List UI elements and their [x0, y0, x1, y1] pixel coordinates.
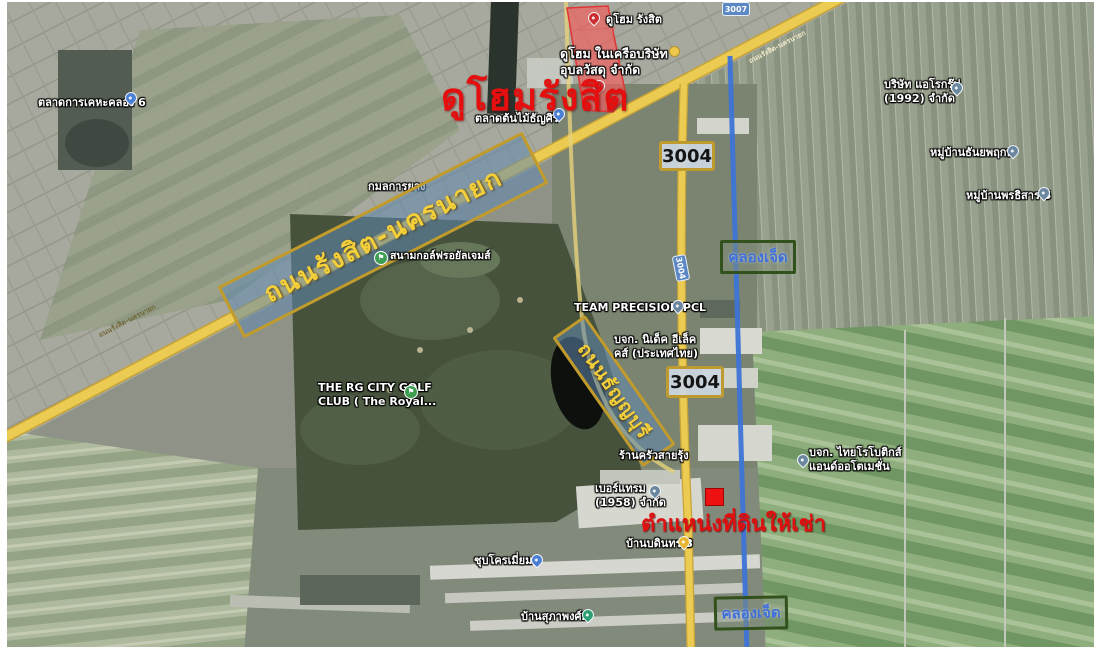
label-bertram-line1: เบอร์แทรม [595, 482, 646, 495]
label-rg-city-golf: THE RG CITY GOLF CLUB ( The Royal... [318, 381, 436, 409]
label-royal-gems-golf: สนามกอล์ฟรอยัลเจมส์ [390, 250, 491, 263]
highway-junction-dot [669, 46, 680, 57]
page-margin [0, 0, 1097, 2]
map-screenshot-page: ดูโฮมรังสิต ตำแหน่งที่ดินให้เช่า ถนนรังส… [0, 0, 1097, 654]
label-dohome-pin: ดูโฮม รังสิต [606, 13, 662, 27]
label-aero-group-line2: (1992) จำกัด [884, 92, 955, 105]
label-aero-group: บริษัท แอโรกรุ๊ป (1992) จำกัด [884, 78, 960, 106]
page-margin [0, 0, 7, 654]
label-nidec-line2: คส์ (ประเทศไทย) [614, 347, 698, 360]
map-canvas: ดูโฮมรังสิต ตำแหน่งที่ดินให้เช่า ถนนรังส… [0, 0, 1097, 654]
label-team-precision: TEAM PRECISION PCL [574, 301, 706, 315]
label-aero-group-line1: บริษัท แอโรกรุ๊ป [884, 78, 960, 91]
route-shield-3004-upper: 3004 [659, 141, 715, 171]
label-thai-robotics-line1: บจก. ไทยโรโบติกส์ [809, 446, 902, 459]
label-ban-supapong: บ้านสุภาพงศ์2 [521, 610, 589, 624]
label-rg-city-golf-line2: CLUB ( The Royal... [318, 395, 436, 408]
label-thai-robotics-line2: แอนด์ออโตเมชั่น [809, 460, 890, 473]
label-nidec: บจก. นิเด็ค อีเล็ค คส์ (ประเทศไทย) [614, 333, 698, 361]
land-for-rent-marker[interactable] [705, 488, 724, 506]
label-thai-robotics: บจก. ไทยโรโบติกส์ แอนด์ออโตเมชั่น [809, 446, 902, 474]
dohome-rangsit-title: ดูโฮมรังสิต [441, 66, 629, 127]
label-chrome-plating: ชุบโครเมี่ยม [474, 554, 532, 568]
label-thanyaphruek-village: หมู่บ้านธันยพฤกษ์ [930, 146, 1014, 160]
canal-label-khlong-chet-lower: คลองเจ็ด [714, 595, 789, 630]
golf-course-icon[interactable]: ⚑ [374, 251, 388, 265]
label-krua-sairung: ร้านครัวสายรุ้ง [619, 449, 689, 463]
route-shield-3004-lower: 3004 [666, 366, 724, 398]
page-margin [0, 647, 1097, 654]
land-for-rent-label: ตำแหน่งที่ดินให้เช่า [641, 506, 826, 541]
canal-label-khlong-chet-upper: คลองเจ็ด [720, 240, 796, 274]
route-marker-3007: 3007 [722, 2, 750, 16]
label-nidec-line1: บจก. นิเด็ค อีเล็ค [614, 333, 696, 346]
golf-club-icon[interactable]: ⚑ [404, 385, 418, 399]
label-dohome-company-line1: ดูโฮม ในเครือบริษัท [560, 46, 668, 61]
